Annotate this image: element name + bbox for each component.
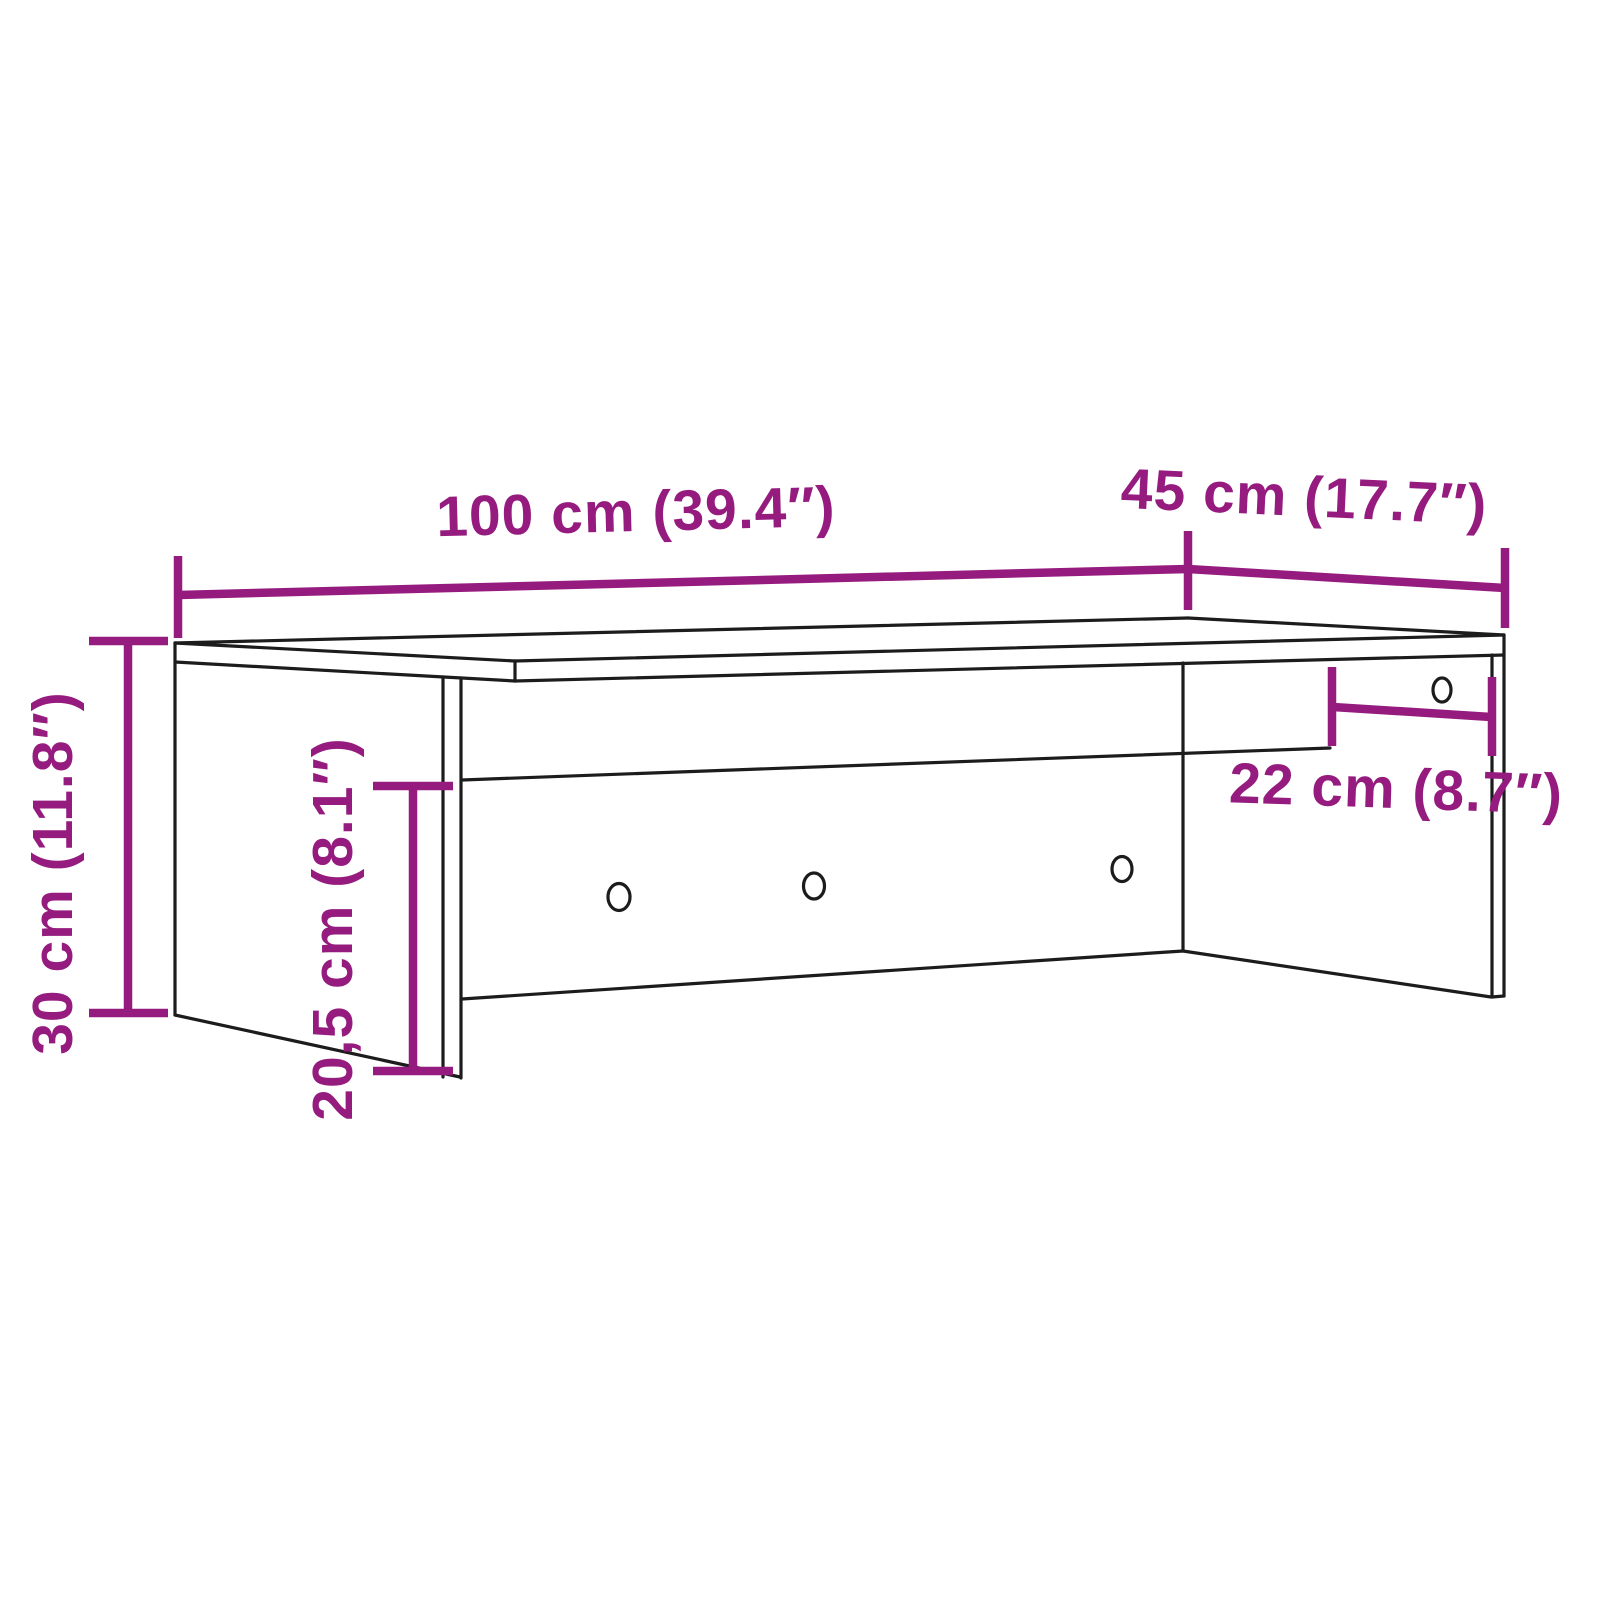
depth-dimension-line [1188, 569, 1505, 588]
width-dimension-line [178, 569, 1188, 595]
back-panel-hole-2 [804, 873, 825, 899]
height-dimension-label: 30 cm (11.8″) [21, 691, 85, 1055]
right-opening-dimension-line [1333, 707, 1491, 717]
back-panel-hole-1 [608, 884, 630, 911]
right-opening-dimension-label: 22 cm (8.7″) [1228, 751, 1564, 827]
top-back-edge [175, 618, 1188, 643]
diagram-canvas: 100 cm (39.4″) 45 cm (17.7″) 30 cm (11.8… [0, 0, 1600, 1600]
furniture-outline-group [175, 618, 1504, 1078]
top-slab-bottom-left-edge [175, 662, 515, 681]
width-dimension-label: 100 cm (39.4″) [435, 475, 836, 549]
top-front-edge [515, 635, 1504, 661]
furniture-dimension-diagram: 100 cm (39.4″) 45 cm (17.7″) 30 cm (11.8… [0, 0, 1600, 1600]
dimension-labels-group: 100 cm (39.4″) 45 cm (17.7″) 30 cm (11.8… [21, 457, 1564, 1121]
right-panel-bottom-edge [1492, 996, 1504, 997]
back-panel-bottom-edge [462, 951, 1183, 999]
top-slab-bottom-front-edge [515, 655, 1504, 681]
right-compartment-bottom-edge [1183, 951, 1491, 997]
opening-height-dimension-label: 20,5 cm (8.1″) [301, 737, 365, 1121]
top-right-depth-edge [1188, 618, 1504, 635]
top-left-depth-edge [175, 643, 515, 661]
back-panel-hole-3 [1112, 857, 1132, 882]
front-rail-bottom-edge [462, 748, 1330, 780]
depth-dimension-label: 45 cm (17.7″) [1120, 457, 1489, 538]
right-section-hole [1433, 678, 1451, 702]
